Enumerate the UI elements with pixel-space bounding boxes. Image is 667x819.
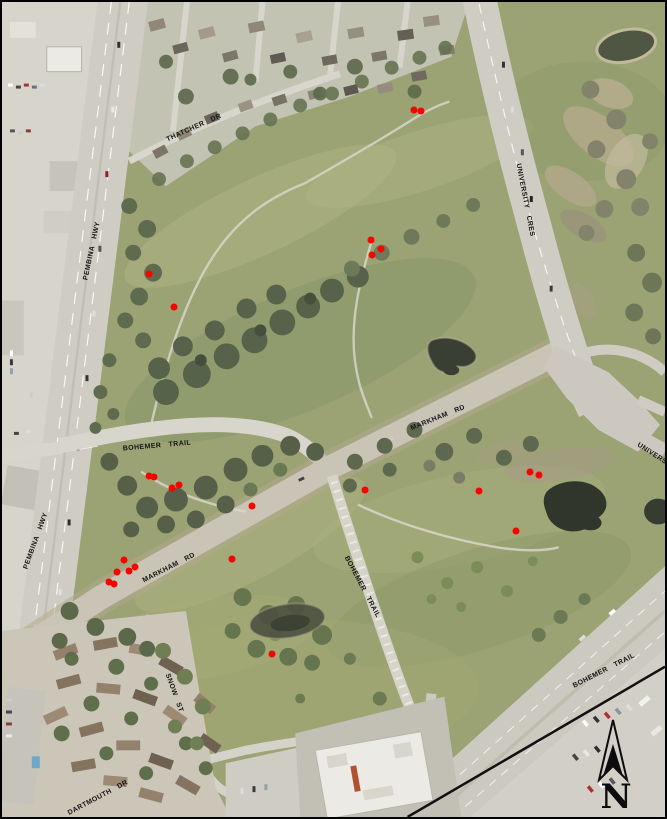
survey-point-marker [527, 469, 534, 476]
survey-point-marker [111, 581, 118, 588]
survey-point-marker [176, 482, 183, 489]
survey-point-marker [269, 651, 276, 658]
survey-point-marker [132, 564, 139, 571]
survey-point-marker [536, 472, 543, 479]
survey-point-marker [126, 568, 133, 575]
north-arrow-icon [590, 714, 642, 784]
survey-point-marker [411, 107, 418, 114]
north-arrow: N [590, 714, 642, 816]
survey-point-marker [121, 557, 128, 564]
survey-point-marker [171, 304, 178, 311]
survey-point-marker [476, 488, 483, 495]
survey-point-marker [146, 271, 153, 278]
survey-point-marker [513, 528, 520, 535]
aerial-map-screenshot: THATCHER DRPEMBINA HWYUNIVERSITY CRESBOH… [0, 0, 667, 819]
survey-point-marker [418, 108, 425, 115]
survey-point-marker [362, 487, 369, 494]
survey-point-marker [368, 237, 375, 244]
survey-point-marker [249, 503, 256, 510]
survey-point-marker [229, 556, 236, 563]
survey-point-marker [378, 246, 385, 253]
survey-markers-layer [2, 2, 665, 817]
survey-point-marker [114, 569, 121, 576]
north-arrow-label: N [600, 780, 631, 814]
survey-point-marker [169, 485, 176, 492]
survey-point-marker [151, 474, 158, 481]
survey-point-marker [369, 252, 376, 259]
